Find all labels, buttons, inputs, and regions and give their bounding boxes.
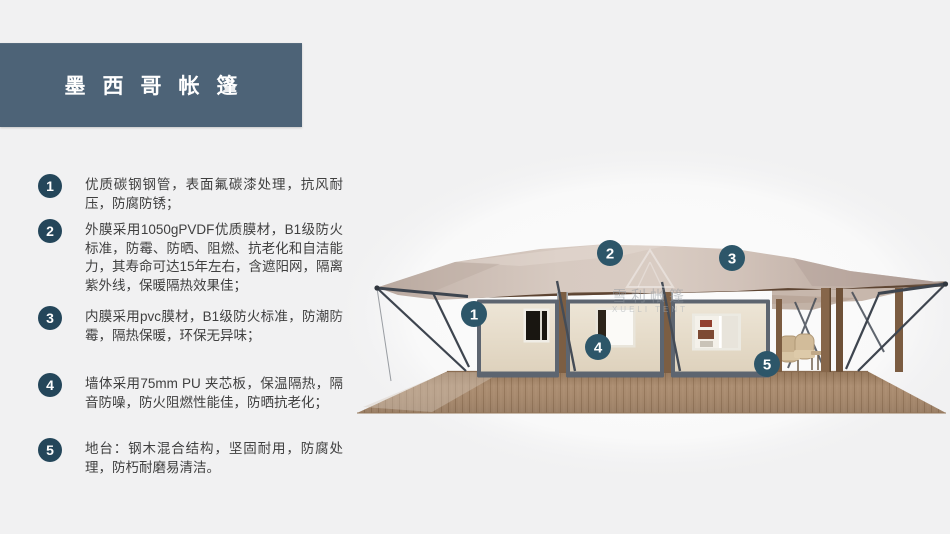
svg-text:4: 4 [594, 339, 603, 356]
watermark-en: XUELI TENT [612, 305, 688, 314]
svg-text:5: 5 [763, 356, 771, 373]
svg-text:2: 2 [606, 245, 614, 262]
wire-anchor [943, 281, 948, 286]
svg-text:1: 1 [470, 306, 478, 323]
tent-illustration: 雪利帐篷 XUELI TENT 12345 [0, 0, 950, 534]
callout-marker-1: 1 [461, 301, 487, 327]
callout-marker-2: 2 [597, 240, 623, 266]
svg-text:3: 3 [728, 250, 736, 267]
wall-module-1 [477, 300, 559, 378]
callout-marker-5: 5 [754, 351, 780, 377]
callout-marker-3: 3 [719, 245, 745, 271]
watermark-cn: 雪利帐篷 [612, 287, 688, 305]
callout-marker-4: 4 [585, 334, 611, 360]
wood-deck [357, 372, 946, 414]
wire-anchor [374, 285, 379, 290]
